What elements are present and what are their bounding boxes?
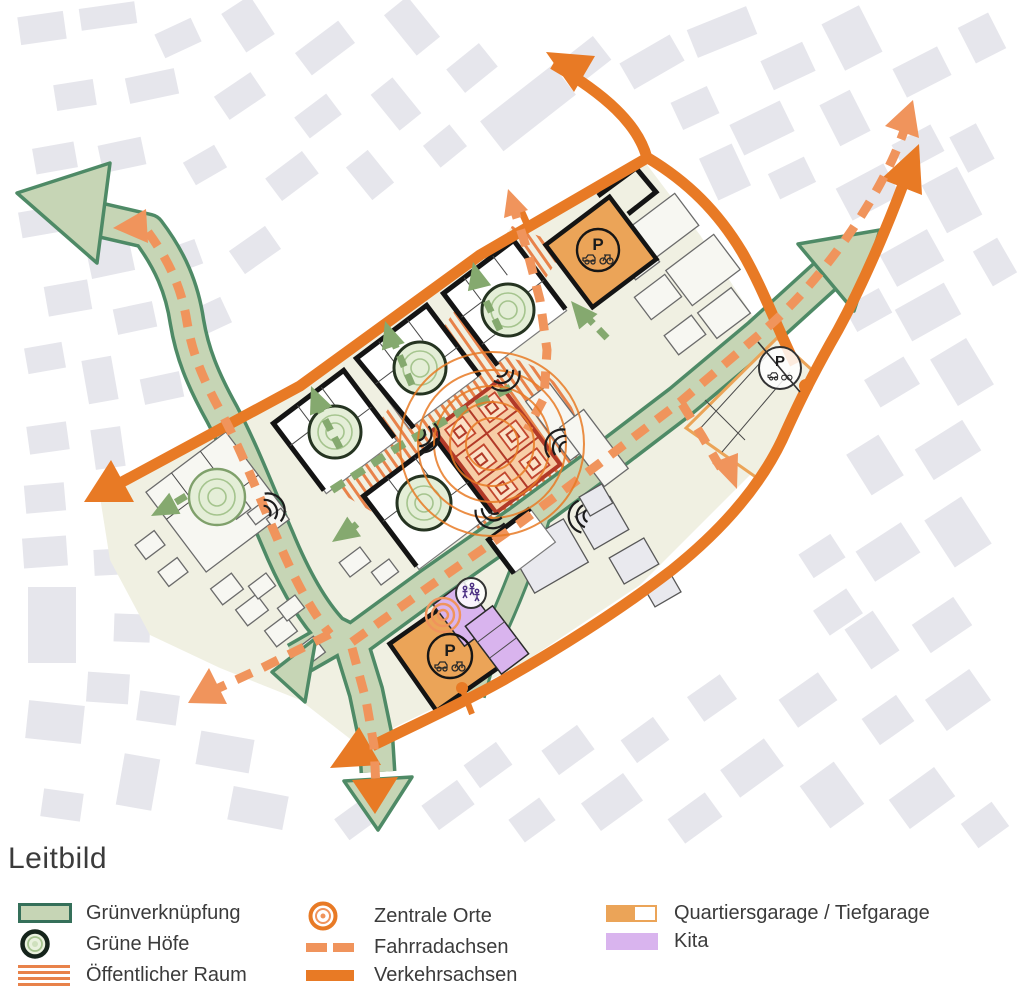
legend-item-gruene-hoefe: Grüne Höfe: [18, 928, 247, 960]
legend-label: Quartiersgarage / Tiefgarage: [674, 902, 930, 925]
legend-item-quartiersgarage: Quartiersgarage / Tiefgarage: [606, 900, 930, 926]
legend-item-zentrale-orte: Zentrale Orte: [306, 900, 517, 932]
road-junction-dot: [799, 379, 813, 393]
bike-axis-swatch: [306, 943, 354, 952]
legend-label: Grünverknüpfung: [86, 902, 241, 925]
legend-item-verkehrsachsen: Verkehrsachsen: [306, 962, 517, 988]
legend-label: Öffentlicher Raum: [86, 964, 247, 987]
legend-label: Grüne Höfe: [86, 933, 189, 956]
legend-item-gruenverknuepfung: Grünverknüpfung: [18, 900, 247, 926]
legend-item-fahrradachsen: Fahrradachsen: [306, 934, 517, 960]
kita-swatch: [606, 933, 658, 950]
green-courtyard-icon: [18, 927, 52, 961]
page-title: Leitbild: [8, 842, 107, 876]
legend-label: Verkehrsachsen: [374, 964, 517, 987]
parking-letter: P: [444, 641, 455, 660]
legend-item-kita: Kita: [606, 928, 930, 954]
legend-label: Fahrradachsen: [374, 936, 509, 959]
legend: Leitbild Grünverknüpfung Grüne Höfe Öffe…: [0, 840, 1024, 993]
legend-column-axes: Zentrale Orte Fahrradachsen Verkehrsachs…: [306, 900, 517, 988]
green-connection-swatch: [18, 903, 72, 923]
leitbild-page: P P P Leitbild: [0, 0, 1024, 993]
traffic-axis-swatch: [306, 970, 354, 981]
legend-column-green: Grünverknüpfung Grüne Höfe Öffentlicher …: [18, 900, 247, 988]
legend-label: Kita: [674, 930, 708, 953]
parking-letter: P: [592, 235, 603, 254]
legend-label: Zentrale Orte: [374, 905, 492, 928]
kita-icon: [456, 578, 486, 608]
garage-swatch: [606, 905, 657, 922]
public-space-swatch: [18, 965, 70, 986]
legend-item-oeffentlicher-raum: Öffentlicher Raum: [18, 962, 247, 988]
central-place-icon: [306, 899, 340, 933]
legend-column-buildings: Quartiersgarage / Tiefgarage Kita: [606, 900, 930, 954]
parking-letter: P: [775, 353, 785, 370]
